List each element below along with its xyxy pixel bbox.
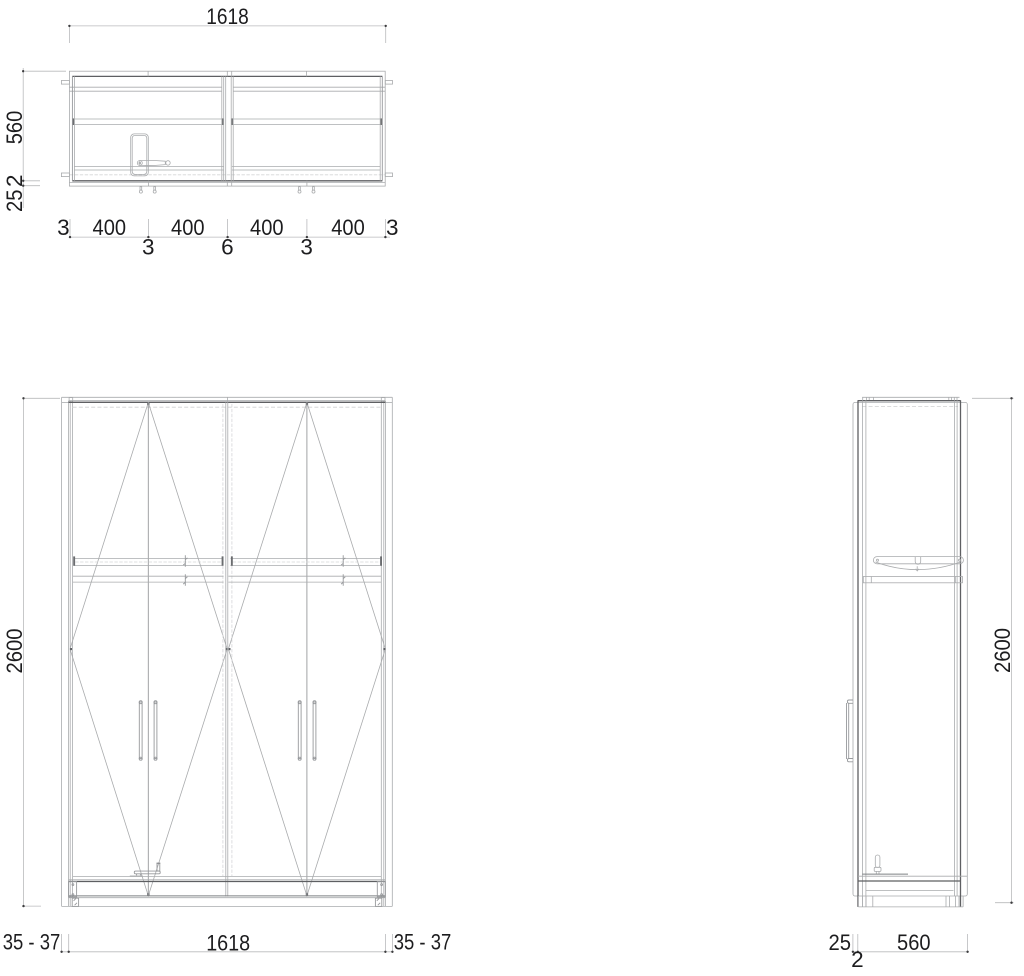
svg-text:400: 400 bbox=[93, 215, 127, 240]
svg-text:25: 25 bbox=[2, 190, 27, 213]
svg-text:3: 3 bbox=[142, 235, 155, 260]
svg-text:25: 25 bbox=[829, 930, 852, 955]
svg-text:2600: 2600 bbox=[2, 629, 27, 674]
svg-text:400: 400 bbox=[331, 215, 365, 240]
svg-text:35 - 37: 35 - 37 bbox=[394, 930, 452, 955]
svg-text:3: 3 bbox=[300, 235, 313, 260]
svg-text:560: 560 bbox=[897, 930, 931, 955]
svg-text:2: 2 bbox=[851, 947, 864, 972]
svg-text:35 - 37: 35 - 37 bbox=[3, 930, 61, 955]
svg-text:400: 400 bbox=[250, 215, 284, 240]
svg-text:2600: 2600 bbox=[990, 628, 1015, 673]
svg-text:3: 3 bbox=[57, 215, 70, 240]
svg-text:6: 6 bbox=[221, 235, 234, 260]
svg-text:1618: 1618 bbox=[206, 4, 249, 29]
svg-text:3: 3 bbox=[386, 215, 399, 240]
svg-text:560: 560 bbox=[2, 111, 27, 145]
svg-text:400: 400 bbox=[171, 215, 205, 240]
svg-text:1618: 1618 bbox=[206, 930, 250, 955]
svg-text:2: 2 bbox=[2, 174, 27, 187]
